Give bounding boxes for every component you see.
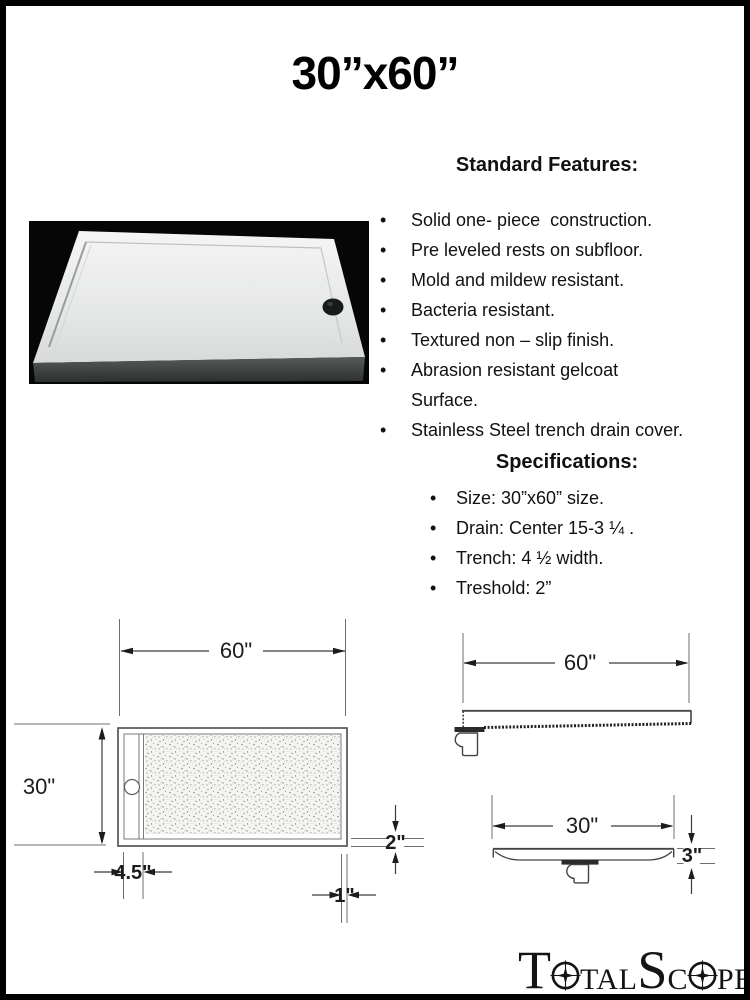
arrowhead-down [392, 821, 399, 832]
front-view-drawing: 30" 3" [492, 795, 715, 894]
spec-item: •Treshold: 2” [424, 573, 744, 603]
product-photo [29, 221, 369, 384]
arrowhead-right [661, 823, 674, 830]
bullet: • [430, 513, 436, 543]
arrowhead-down [688, 833, 695, 844]
spec-item: •Trench: 4 ½ width. [424, 543, 744, 573]
arrowhead-left [493, 823, 506, 830]
bullet: • [380, 265, 386, 295]
technical-drawings: 60" 30" 4.5" 1" [6, 606, 750, 946]
spec-item: •Drain: Center 15-3 ¼ . [424, 513, 744, 543]
arrowhead-right [676, 660, 689, 667]
arrowhead-up [99, 727, 106, 740]
dim-label-trench-offset: 4.5" [114, 862, 151, 884]
logo-letter: T [518, 949, 551, 991]
spec-text: Trench: 4 ½ width. [456, 548, 603, 568]
bullet: • [430, 543, 436, 573]
bullet: • [380, 355, 386, 385]
bullet: • [380, 205, 386, 235]
pan-basin-line [495, 852, 672, 861]
specifications-heading: Specifications: [426, 451, 708, 474]
scope-o-icon [687, 960, 718, 991]
feature-text: Abrasion resistant gelcoat Surface. [411, 360, 618, 410]
bullet: • [380, 235, 386, 265]
feature-text: Solid one- piece construction. [411, 210, 652, 230]
feature-text: Textured non – slip finish. [411, 330, 614, 350]
logo-letter: S [637, 949, 667, 991]
feature-text: Pre leveled rests on subfloor. [411, 240, 643, 260]
page-title: 30”x60” [6, 46, 744, 100]
arrowhead-up [688, 868, 695, 879]
logo-letters: TAL [580, 968, 637, 991]
drain-trap [567, 865, 589, 883]
dim-label-front-width: 30" [566, 813, 598, 838]
dim-label-edge: 1" [334, 885, 355, 907]
bullet: • [380, 325, 386, 355]
brand-logo: T TAL S C PE [518, 943, 750, 991]
feature-text: Mold and mildew resistant. [411, 270, 624, 290]
spec-text: Size: 30”x60” size. [456, 488, 604, 508]
drain-hole-highlight [327, 302, 333, 306]
pan-sloped-bottom [484, 724, 691, 728]
spec-sheet-page: 30”x60” Standard Features: •Solid one- p… [0, 0, 750, 1000]
textured-surface [145, 735, 340, 834]
feature-item: •Solid one- piece construction. [370, 205, 750, 235]
drain-trap [455, 733, 477, 756]
dim-label-front-height: 3" [682, 845, 703, 867]
arrowhead-right [333, 648, 346, 655]
feature-text: Stainless Steel trench drain cover. [411, 420, 683, 440]
drain-hole [323, 299, 344, 316]
logo-letter: C [667, 968, 688, 991]
feature-item: •Mold and mildew resistant. [370, 265, 750, 295]
bullet: • [380, 415, 386, 445]
feature-item: •Bacteria resistant. [370, 295, 750, 325]
logo-letters: PE [717, 968, 750, 991]
feature-item: •Abrasion resistant gelcoat Surface. [370, 355, 750, 415]
dim-label-threshold: 2" [385, 832, 406, 854]
spec-item: •Size: 30”x60” size. [424, 483, 744, 513]
features-list: •Solid one- piece construction. •Pre lev… [370, 205, 750, 445]
pan-end-walls [493, 849, 673, 858]
arrowhead-down [99, 832, 106, 845]
drain-circle [125, 780, 140, 795]
scope-o-icon [550, 960, 581, 991]
feature-item: •Pre leveled rests on subfloor. [370, 235, 750, 265]
bullet: • [380, 295, 386, 325]
drain-flange [455, 727, 485, 732]
side-view-drawing: 60" [455, 633, 692, 756]
spec-text: Treshold: 2” [456, 578, 551, 598]
features-heading: Standard Features: [372, 154, 722, 177]
feature-item: •Stainless Steel trench drain cover. [370, 415, 750, 445]
feature-text: Bacteria resistant. [411, 300, 555, 320]
dim-label-top-width: 60" [220, 638, 252, 663]
extension-lines [120, 619, 346, 716]
bullet: • [430, 573, 436, 603]
arrowhead-left [464, 660, 477, 667]
arrowhead-left [121, 648, 134, 655]
feature-item: •Textured non – slip finish. [370, 325, 750, 355]
top-view-drawing: 60" 30" 4.5" 1" [14, 619, 424, 923]
dim-label-side-length: 60" [564, 650, 596, 675]
spec-text: Drain: Center 15-3 ¼ . [456, 518, 634, 538]
dim-label-top-height: 30" [23, 774, 55, 799]
specifications-list: •Size: 30”x60” size. •Drain: Center 15-3… [424, 483, 744, 603]
bullet: • [430, 483, 436, 513]
